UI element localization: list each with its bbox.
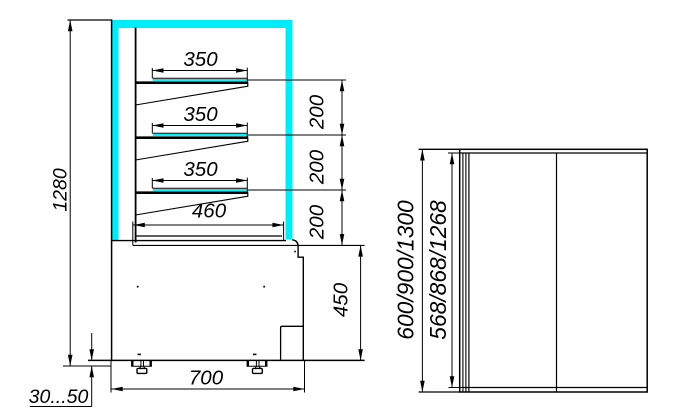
svg-text:200: 200 bbox=[306, 149, 329, 185]
svg-text:350: 350 bbox=[183, 48, 218, 71]
svg-text:350: 350 bbox=[183, 103, 218, 126]
svg-text:350: 350 bbox=[183, 158, 218, 181]
svg-text:450: 450 bbox=[330, 282, 353, 317]
svg-text:600/900/1300: 600/900/1300 bbox=[393, 200, 419, 340]
svg-text:700: 700 bbox=[189, 367, 224, 390]
svg-text:1280: 1280 bbox=[50, 168, 72, 212]
svg-text:460: 460 bbox=[192, 200, 227, 223]
svg-text:568/868/1268: 568/868/1268 bbox=[425, 200, 451, 340]
svg-text:200: 200 bbox=[306, 204, 329, 240]
svg-text:200: 200 bbox=[306, 94, 329, 130]
svg-text:30...50: 30...50 bbox=[29, 386, 89, 408]
